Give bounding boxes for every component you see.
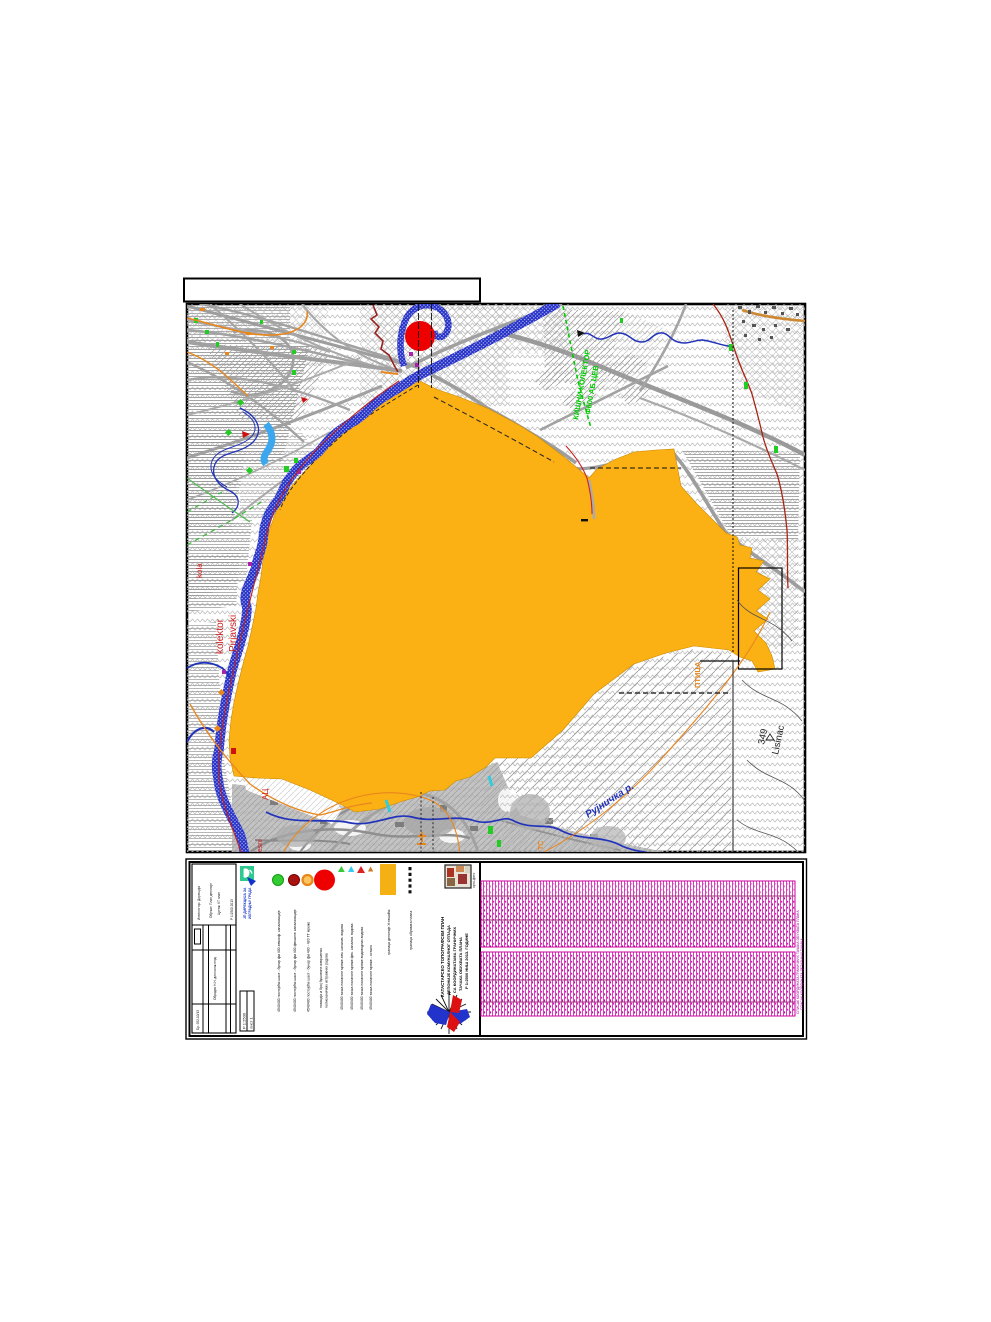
svg-text:граница обухвата плана: граница обухвата плана — [409, 911, 413, 950]
svg-text:ДЕПОНИЈЕ КОМУНАЛНОГ ОТПАДА: ДЕПОНИЈЕ КОМУНАЛНОГ ОТПАДА — [446, 925, 451, 995]
svg-text:4540400 постојећи шахт - бунар: 4540400 постојећи шахт - бунар фи 400 ат… — [277, 910, 281, 1012]
svg-text:геомеханичких истражних радова: геомеханичких истражних радова — [325, 953, 329, 1008]
svg-text:ТС: ТС — [538, 841, 545, 850]
svg-text:4540400 постојећи шахт - бунар: 4540400 постојећи шахт - бунар фи 400 фе… — [293, 909, 297, 1012]
svg-text:СА КООРДИНАТАМА ГРАНИЧНИХ: СА КООРДИНАТАМА ГРАНИЧНИХ — [452, 927, 457, 993]
svg-text:граница депоније Углешићи: граница депоније Углешићи — [387, 910, 391, 955]
svg-text:Цртеж: КТ план: Цртеж: КТ план — [217, 892, 221, 915]
svg-text:Р 1:2500 2013: Р 1:2500 2013 — [230, 899, 234, 920]
svg-text:ТАЧАКА ОБУХВАТА ПЛАНА: ТАЧАКА ОБУХВАТА ПЛАНА — [458, 937, 463, 991]
svg-text:4540400 тачка полигоне мреже а: 4540400 тачка полигоне мреже атм. канали… — [340, 924, 344, 1010]
svg-text:СПИСАК КООРДИНАТА ДЕТАЉНИХ ТАЧ: СПИСАК КООРДИНАТА ДЕТАЉНИХ ТАЧАКА — [800, 938, 804, 1010]
svg-text:kola: kola — [195, 563, 204, 578]
svg-text:Бр. 952-10/13: Бр. 952-10/13 — [196, 1010, 200, 1030]
svg-text:4540400 тачка полигоне мреже -: 4540400 тачка полигоне мреже - остало — [369, 945, 373, 1010]
svg-text:Р 1:2500 НИШ 2013. ГОДИНЕ: Р 1:2500 НИШ 2013. ГОДИНЕ — [464, 933, 469, 989]
svg-text:kolektor: kolektor — [215, 618, 226, 654]
svg-text:КАТАСТАРСКО ТОПОГРАФСКИ ПЛАН: КАТАСТАРСКО ТОПОГРАФСКИ ПЛАН — [440, 917, 445, 997]
svg-text:4540400 тачка полигоне мреже ф: 4540400 тачка полигоне мреже фек. канали… — [350, 924, 354, 1010]
svg-text:Обрадио Н.Н. дипл.инж.геод.: Обрадио Н.Н. дипл.инж.геод. — [213, 956, 217, 1000]
svg-text:ЈП ДИРЕКЦИЈА ЗА: ЈП ДИРЕКЦИЈА ЗА — [243, 887, 247, 919]
svg-text:лист 1: лист 1 — [249, 1016, 254, 1029]
svg-text:ПТИЦА: ПТИЦА — [693, 661, 702, 688]
svg-text:4540400 тачка полигоне мреже в: 4540400 тачка полигоне мреже водоводних … — [360, 927, 364, 1010]
svg-text:Инвеститор: Дирекција: Инвеститор: Дирекција — [197, 886, 201, 920]
svg-text:Објекат: План депоније: Објекат: План депоније — [209, 883, 213, 918]
svg-text:ИЗГРАДЊУ ГРАДА: ИЗГРАДЊУ ГРАДА — [248, 887, 252, 919]
svg-text:4540400 постојећи шахт - бунар: 4540400 постојећи шахт - бунар фи 400 - … — [307, 922, 311, 1012]
svg-text:орто-фото: орто-фото — [472, 873, 476, 888]
svg-text:Pirjavski: Pirjavski — [228, 615, 239, 652]
svg-text:АЦ: АЦ — [261, 789, 270, 800]
svg-text:Р 1:2500: Р 1:2500 — [242, 1012, 247, 1029]
svg-text:позиција и број бушотине изврш: позиција и број бушотине извршених — [319, 948, 323, 1008]
